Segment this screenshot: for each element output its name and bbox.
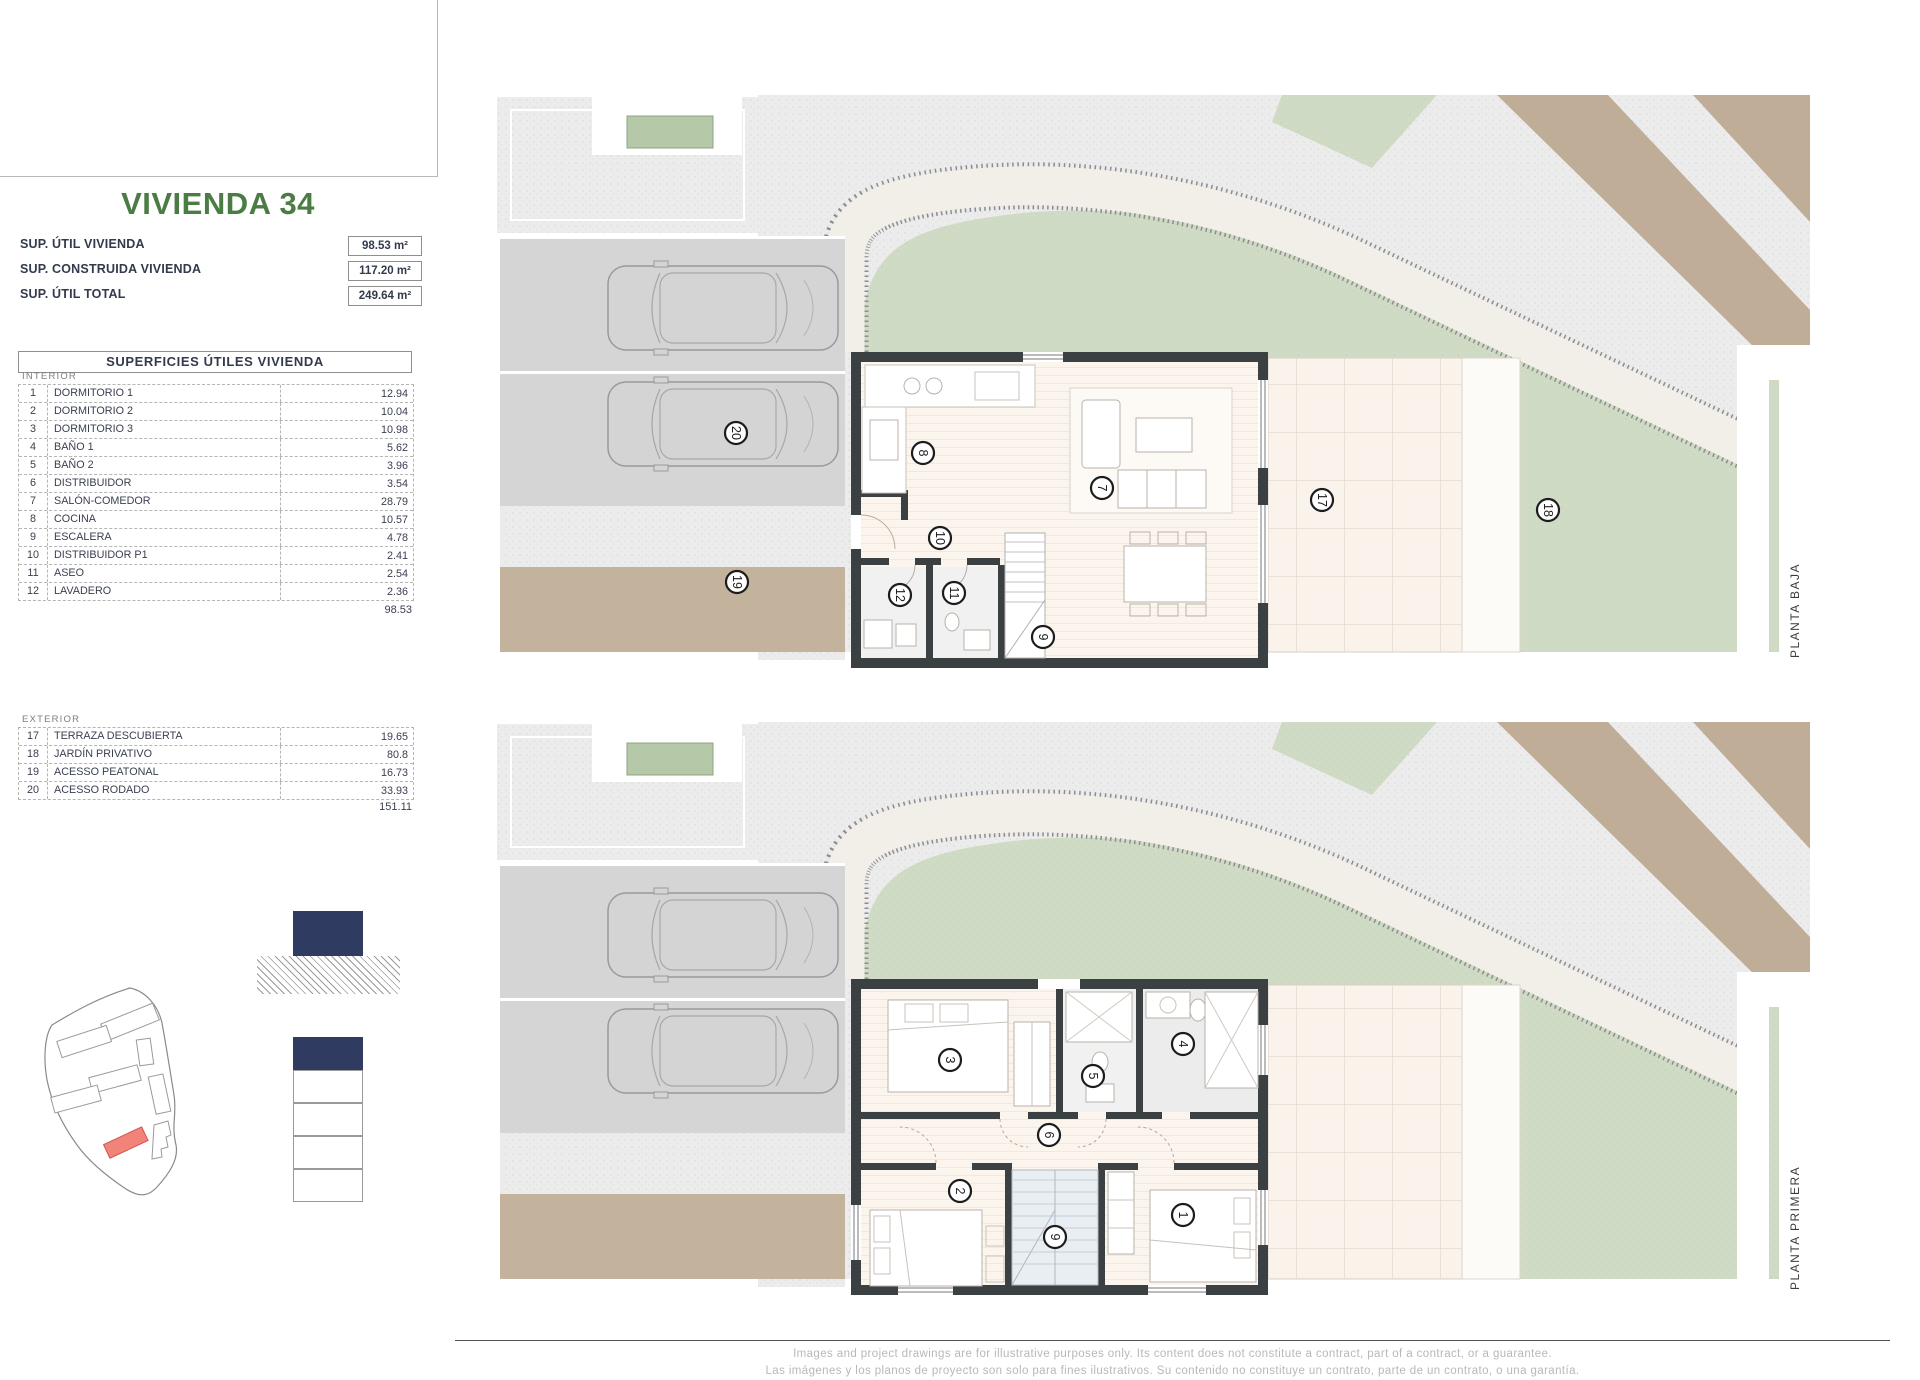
room-marker-number: 1: [1176, 1212, 1190, 1219]
label-planta-primera: PLANTA PRIMERA: [1788, 1168, 1802, 1290]
interior-areas-table: 1DORMITORIO 112.942DORMITORIO 210.043DOR…: [18, 384, 414, 601]
table-cell: 2.54: [281, 568, 413, 580]
interior-section-label: INTERIOR: [22, 371, 77, 382]
table-cell: DORMITORIO 3: [48, 421, 281, 438]
table-cell: 3.96: [281, 460, 413, 472]
room-marker-number: 9: [1048, 1234, 1062, 1241]
table-cell: 2: [19, 403, 48, 420]
table-row: 9ESCALERA4.78: [19, 529, 413, 547]
exterior-section-label: EXTERIOR: [22, 714, 80, 725]
table-row: 6DISTRIBUIDOR3.54: [19, 475, 413, 493]
exterior-areas-table: 17TERRAZA DESCUBIERTA19.6518JARDÍN PRIVA…: [18, 727, 414, 800]
room-marker-number: 10: [933, 531, 947, 545]
table-cell: 12: [19, 583, 48, 600]
table-row: 10DISTRIBUIDOR P12.41: [19, 547, 413, 565]
footer-disclaimer: Images and project drawings are for illu…: [455, 1346, 1890, 1380]
table-row: 4BAÑO 15.62: [19, 439, 413, 457]
room-marker-number: 18: [1541, 503, 1555, 517]
sup-construida-value: 117.20 m²: [348, 261, 422, 281]
table-cell: 7: [19, 493, 48, 510]
room-marker-number: 6: [1042, 1132, 1056, 1139]
table-cell: JARDÍN PRIVATIVO: [48, 746, 281, 763]
table-cell: 20: [19, 782, 48, 799]
table-cell: BAÑO 2: [48, 457, 281, 474]
areas-table-header: SUPERFICIES ÚTILES VIVIENDA: [18, 351, 412, 373]
table-row: 8COCINA10.57: [19, 511, 413, 529]
sup-util-vivienda-value: 98.53 m²: [348, 236, 422, 256]
table-cell: SALÓN-COMEDOR: [48, 493, 281, 510]
table-cell: 8: [19, 511, 48, 528]
room-marker-number: 11: [947, 587, 961, 600]
table-cell: 6: [19, 475, 48, 492]
table-cell: COCINA: [48, 511, 281, 528]
table-row: 11ASEO2.54: [19, 565, 413, 583]
footer-divider: [455, 1340, 1890, 1341]
sup-construida-label: SUP. CONSTRUIDA VIVIENDA: [20, 262, 340, 276]
table-cell: LAVADERO: [48, 583, 281, 600]
level-key-cell: [293, 1136, 363, 1169]
table-cell: 19: [19, 764, 48, 781]
level-key-cell: [293, 1169, 363, 1202]
table-row: 2DORMITORIO 210.04: [19, 403, 413, 421]
table-row: 19ACESSO PEATONAL16.73: [19, 764, 413, 782]
table-cell: DISTRIBUIDOR P1: [48, 547, 281, 564]
table-row: 7SALÓN-COMEDOR28.79: [19, 493, 413, 511]
table-cell: 28.79: [281, 496, 413, 508]
room-marker-number: 7: [1095, 485, 1109, 492]
level-key-active-floor: [293, 1037, 363, 1070]
table-row: 3DORMITORIO 310.98: [19, 421, 413, 439]
level-key-cell: [293, 1103, 363, 1136]
terrace-first: [1268, 985, 1520, 1279]
room-marker-number: 12: [893, 588, 907, 602]
table-cell: 12.94: [281, 388, 413, 400]
interior-total: 98.53: [18, 604, 417, 616]
table-cell: 3.54: [281, 478, 413, 490]
plan-planta-primera: 3546291: [497, 722, 1810, 1317]
table-cell: DORMITORIO 1: [48, 385, 281, 402]
table-cell: 11: [19, 565, 48, 582]
plan-planta-baja: 20198107121191718: [497, 95, 1810, 690]
table-cell: 17: [19, 728, 48, 745]
room-marker-number: 19: [730, 575, 744, 589]
legend-building-block: [293, 911, 363, 957]
table-cell: 3: [19, 421, 48, 438]
table-cell: 80.8: [281, 749, 413, 761]
table-cell: 5: [19, 457, 48, 474]
site-key-map: [45, 988, 177, 1195]
table-row: 5BAÑO 23.96: [19, 457, 413, 475]
table-cell: DORMITORIO 2: [48, 403, 281, 420]
room-marker-number: 9: [1036, 634, 1050, 641]
header-divider-vertical: [437, 0, 438, 176]
table-cell: ASEO: [48, 565, 281, 582]
label-planta-baja: PLANTA BAJA: [1788, 540, 1802, 658]
room-marker-number: 5: [1086, 1073, 1100, 1080]
table-cell: ACESSO PEATONAL: [48, 764, 281, 781]
table-cell: ESCALERA: [48, 529, 281, 546]
sup-util-vivienda-label: SUP. ÚTIL VIVIENDA: [20, 237, 340, 251]
room-marker-number: 17: [1315, 493, 1329, 507]
table-row: 18JARDÍN PRIVATIVO80.8: [19, 746, 413, 764]
table-cell: 1: [19, 385, 48, 402]
header-divider-horizontal: [0, 176, 438, 177]
table-cell: TERRAZA DESCUBIERTA: [48, 728, 281, 745]
table-cell: 19.65: [281, 731, 413, 743]
page-title: VIVIENDA 34: [18, 186, 418, 222]
table-row: 17TERRAZA DESCUBIERTA19.65: [19, 728, 413, 746]
terrace-ground: [1268, 358, 1520, 652]
table-cell: 10.57: [281, 514, 413, 526]
room-marker-number: 4: [1176, 1041, 1190, 1048]
building-ground-floor: [851, 352, 1268, 668]
table-cell: 18: [19, 746, 48, 763]
footer-disclaimer-en: Images and project drawings are for illu…: [455, 1346, 1890, 1363]
exterior-total: 151.11: [18, 801, 417, 813]
table-cell: 9: [19, 529, 48, 546]
table-cell: 2.41: [281, 550, 413, 562]
level-key-cell: [293, 1070, 363, 1103]
room-marker-number: 20: [729, 426, 743, 440]
table-cell: 10.98: [281, 424, 413, 436]
footer-disclaimer-es: Las imágenes y los planos de proyecto so…: [455, 1363, 1890, 1380]
table-cell: 10: [19, 547, 48, 564]
table-cell: 4: [19, 439, 48, 456]
table-cell: 33.93: [281, 785, 413, 797]
room-marker-number: 3: [943, 1057, 957, 1064]
table-cell: 10.04: [281, 406, 413, 418]
table-cell: 5.62: [281, 442, 413, 454]
table-row: 12LAVADERO2.36: [19, 583, 413, 600]
room-marker-number: 8: [916, 450, 930, 457]
sup-util-total-value: 249.64 m²: [348, 286, 422, 306]
table-row: 20ACESSO RODADO33.93: [19, 782, 413, 799]
table-cell: 2.36: [281, 586, 413, 598]
table-row: 1DORMITORIO 112.94: [19, 385, 413, 403]
table-cell: 16.73: [281, 767, 413, 779]
table-cell: DISTRIBUIDOR: [48, 475, 281, 492]
table-cell: ACESSO RODADO: [48, 782, 281, 799]
table-cell: BAÑO 1: [48, 439, 281, 456]
room-marker-number: 2: [953, 1188, 967, 1195]
table-cell: 4.78: [281, 532, 413, 544]
legend-ground-hatch: [257, 956, 400, 994]
sup-util-total-label: SUP. ÚTIL TOTAL: [20, 287, 340, 301]
